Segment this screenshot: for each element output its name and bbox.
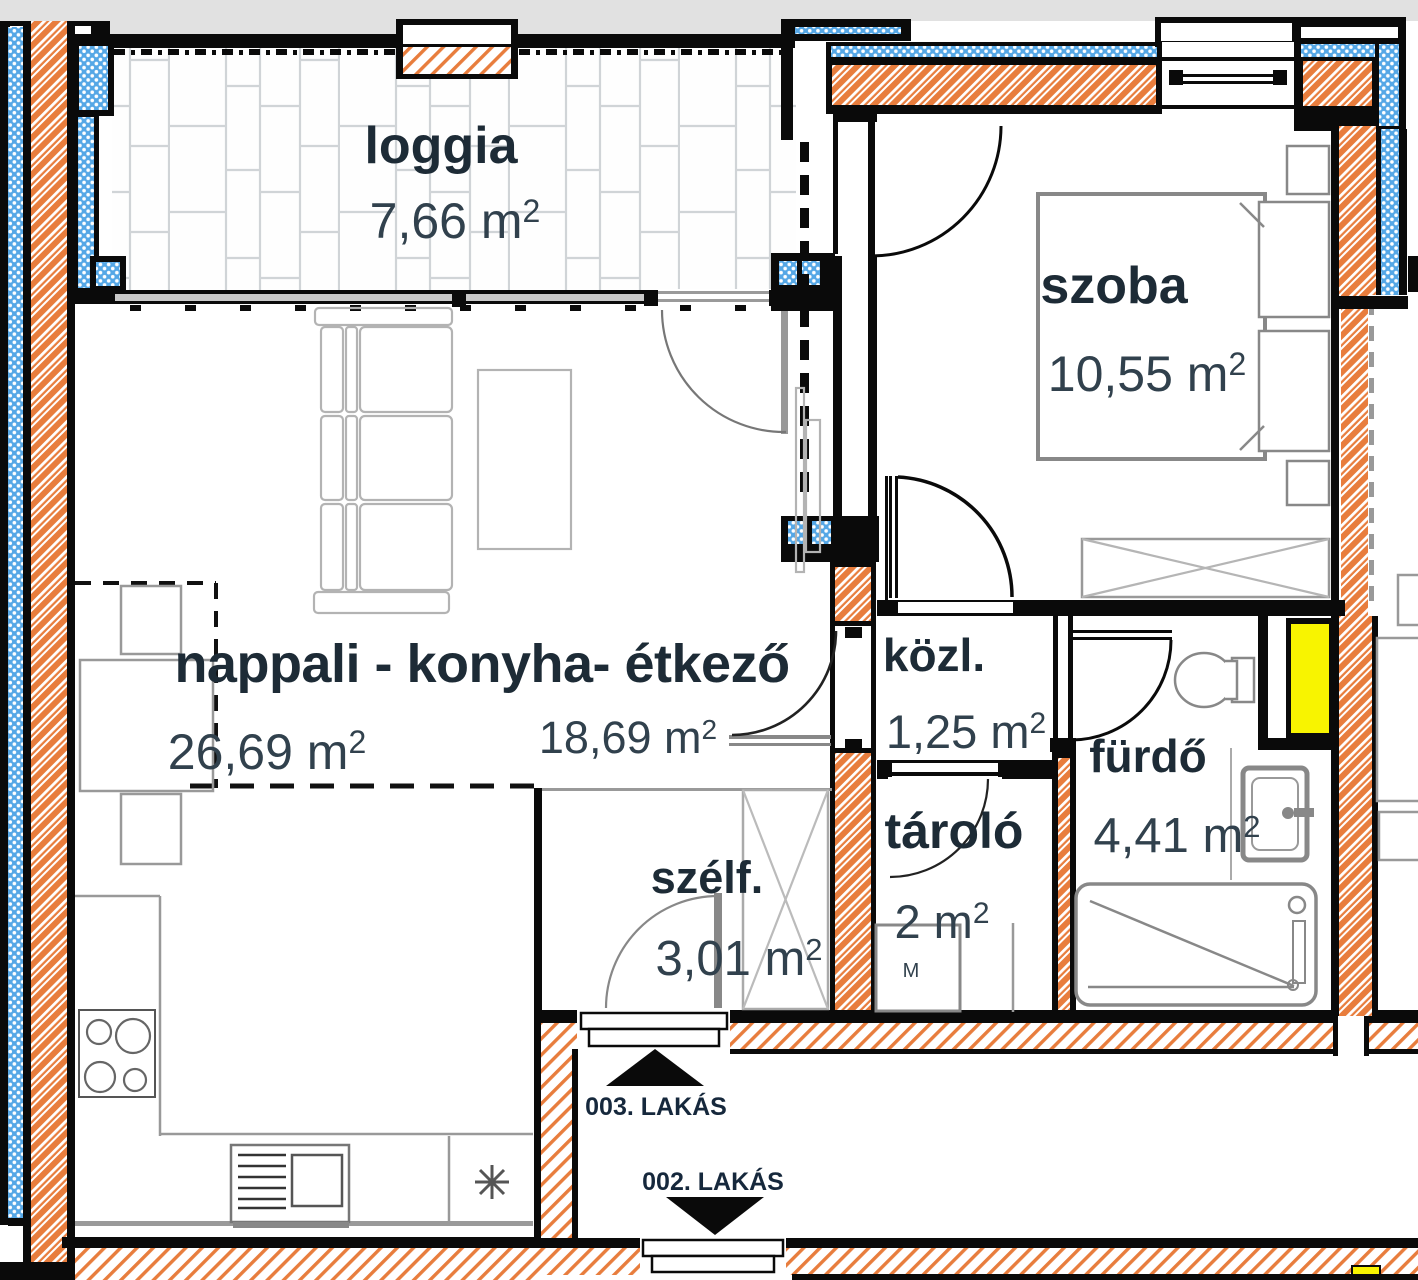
svg-text:002. LAKÁS: 002. LAKÁS [642, 1167, 784, 1196]
svg-text:loggia: loggia [364, 117, 518, 175]
svg-text:26,69 m2: 26,69 m2 [168, 724, 366, 780]
svg-text:4,41 m2: 4,41 m2 [1093, 809, 1260, 863]
svg-text:M: M [903, 960, 920, 982]
svg-text:3,01 m2: 3,01 m2 [655, 932, 822, 986]
svg-text:nappali - konyha- étkező: nappali - konyha- étkező [174, 634, 789, 694]
svg-text:szoba: szoba [1040, 257, 1188, 315]
svg-text:szélf.: szélf. [651, 852, 764, 903]
svg-text:fürdő: fürdő [1089, 730, 1207, 782]
svg-text:003. LAKÁS: 003. LAKÁS [585, 1092, 727, 1121]
svg-text:10,55 m2: 10,55 m2 [1048, 346, 1246, 402]
svg-text:18,69 m2: 18,69 m2 [539, 712, 717, 763]
svg-text:közl.: közl. [883, 629, 985, 681]
svg-text:tároló: tároló [885, 803, 1024, 859]
svg-text:1,25 m2: 1,25 m2 [886, 705, 1046, 758]
svg-text:7,66 m2: 7,66 m2 [370, 193, 541, 249]
